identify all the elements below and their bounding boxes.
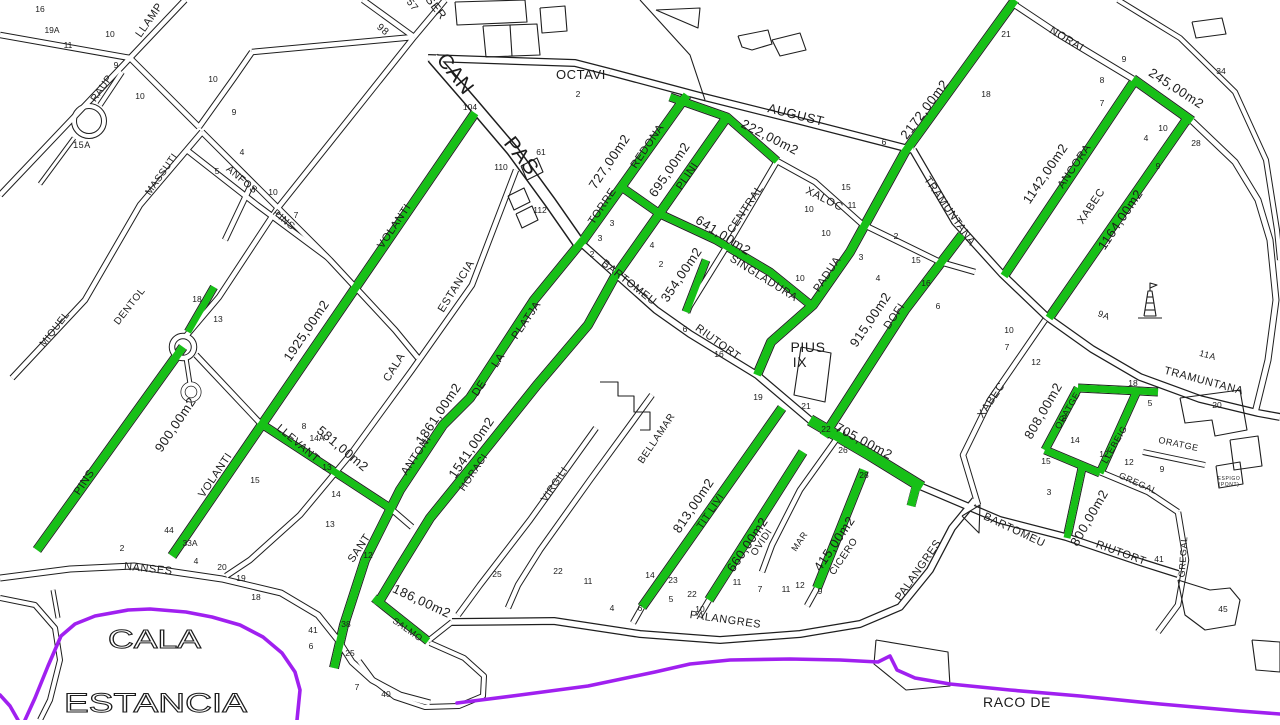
svg-text:PIUS: PIUS [790,339,825,355]
svg-text:7: 7 [294,210,299,220]
svg-text:6: 6 [683,324,688,334]
svg-text:41: 41 [308,625,318,635]
svg-text:41: 41 [1154,554,1164,564]
svg-text:7: 7 [758,584,763,594]
svg-text:4: 4 [876,273,881,283]
svg-text:3: 3 [598,233,603,243]
svg-text:10: 10 [208,74,218,84]
svg-text:3: 3 [610,218,615,228]
svg-text:10: 10 [1004,325,1014,335]
svg-text:(PONT): (PONT) [1219,482,1240,488]
svg-text:20: 20 [217,562,227,572]
svg-text:5: 5 [669,594,674,604]
svg-text:IX: IX [793,354,807,370]
svg-text:3: 3 [859,252,864,262]
svg-text:10: 10 [135,91,145,101]
svg-text:4: 4 [1144,133,1149,143]
svg-text:6: 6 [309,641,314,651]
svg-text:18: 18 [192,294,202,304]
svg-text:9: 9 [1156,161,1161,171]
svg-text:28: 28 [859,470,869,480]
svg-text:10: 10 [695,604,705,614]
svg-text:2: 2 [894,231,899,241]
svg-text:12: 12 [1099,449,1109,459]
svg-text:9: 9 [232,107,237,117]
svg-text:9: 9 [1160,464,1165,474]
svg-text:25: 25 [345,648,355,658]
svg-text:13: 13 [325,519,335,529]
svg-text:22: 22 [821,424,831,434]
svg-text:16: 16 [921,278,931,288]
svg-text:2: 2 [576,89,581,99]
svg-text:2: 2 [659,259,664,269]
svg-text:16: 16 [714,349,724,359]
svg-text:20: 20 [1212,400,1222,410]
svg-text:8: 8 [302,421,307,431]
svg-text:7: 7 [1100,98,1105,108]
svg-text:6: 6 [638,603,643,613]
svg-text:12: 12 [795,580,805,590]
svg-text:34: 34 [1216,66,1226,76]
svg-text:23: 23 [668,575,678,585]
svg-text:14: 14 [331,489,341,499]
svg-text:7: 7 [1005,342,1010,352]
svg-text:10: 10 [105,29,115,39]
svg-text:OCTAVI: OCTAVI [556,67,606,82]
svg-text:9: 9 [114,60,119,70]
svg-text:21: 21 [1001,29,1011,39]
svg-text:18: 18 [981,89,991,99]
svg-text:61: 61 [536,147,546,157]
svg-text:5: 5 [215,166,220,176]
svg-text:40: 40 [381,689,391,699]
svg-text:21: 21 [801,401,811,411]
svg-text:15: 15 [1041,456,1051,466]
svg-text:45: 45 [1218,604,1228,614]
svg-text:112: 112 [533,205,547,215]
svg-text:44: 44 [164,525,174,535]
svg-text:RACO DE: RACO DE [983,694,1051,710]
svg-text:2: 2 [590,249,595,259]
svg-text:10: 10 [804,204,814,214]
svg-text:15A: 15A [73,140,91,150]
svg-text:4: 4 [650,240,655,250]
svg-text:16: 16 [35,4,45,14]
svg-text:14: 14 [1070,435,1080,445]
svg-text:11: 11 [64,40,73,50]
svg-text:6: 6 [882,137,887,147]
svg-text:26: 26 [838,445,848,455]
svg-text:38: 38 [341,619,351,629]
svg-text:22: 22 [553,566,563,576]
svg-text:6: 6 [936,301,941,311]
svg-text:10: 10 [1158,123,1168,133]
svg-text:14: 14 [645,570,655,580]
svg-text:19: 19 [753,392,763,402]
svg-text:33A: 33A [182,538,197,548]
svg-text:4: 4 [240,147,245,157]
svg-text:10: 10 [268,187,278,197]
svg-text:10: 10 [795,273,805,283]
svg-text:22: 22 [687,589,697,599]
svg-text:19A: 19A [44,25,59,35]
svg-text:15: 15 [841,182,851,192]
svg-text:11: 11 [584,576,593,586]
svg-text:12: 12 [363,550,373,560]
svg-text:4: 4 [194,556,199,566]
svg-text:13: 13 [322,462,332,472]
svg-text:5: 5 [1148,398,1153,408]
svg-text:18: 18 [251,592,261,602]
svg-text:9: 9 [1122,54,1127,64]
svg-text:9: 9 [818,586,823,596]
svg-text:104: 104 [463,102,477,112]
svg-text:11: 11 [782,584,791,594]
svg-text:2: 2 [1062,413,1067,423]
svg-text:10: 10 [821,228,831,238]
svg-text:12: 12 [1124,457,1134,467]
svg-text:11: 11 [733,577,742,587]
svg-text:ESTANCIA: ESTANCIA [64,688,247,718]
svg-text:8: 8 [1100,75,1105,85]
svg-text:15: 15 [250,475,260,485]
svg-text:7: 7 [355,682,360,692]
svg-text:4: 4 [610,603,615,613]
svg-text:12: 12 [1031,357,1041,367]
svg-text:25: 25 [492,569,502,579]
svg-text:11: 11 [848,200,857,210]
svg-text:15: 15 [911,255,921,265]
svg-text:13: 13 [213,314,223,324]
svg-text:14A: 14A [309,433,324,443]
svg-text:28: 28 [1191,138,1201,148]
svg-text:3: 3 [1047,487,1052,497]
svg-text:2: 2 [120,543,125,553]
svg-text:110: 110 [494,162,508,172]
svg-text:CALA: CALA [108,624,202,654]
svg-text:18: 18 [1128,378,1138,388]
svg-text:19: 19 [236,573,246,583]
